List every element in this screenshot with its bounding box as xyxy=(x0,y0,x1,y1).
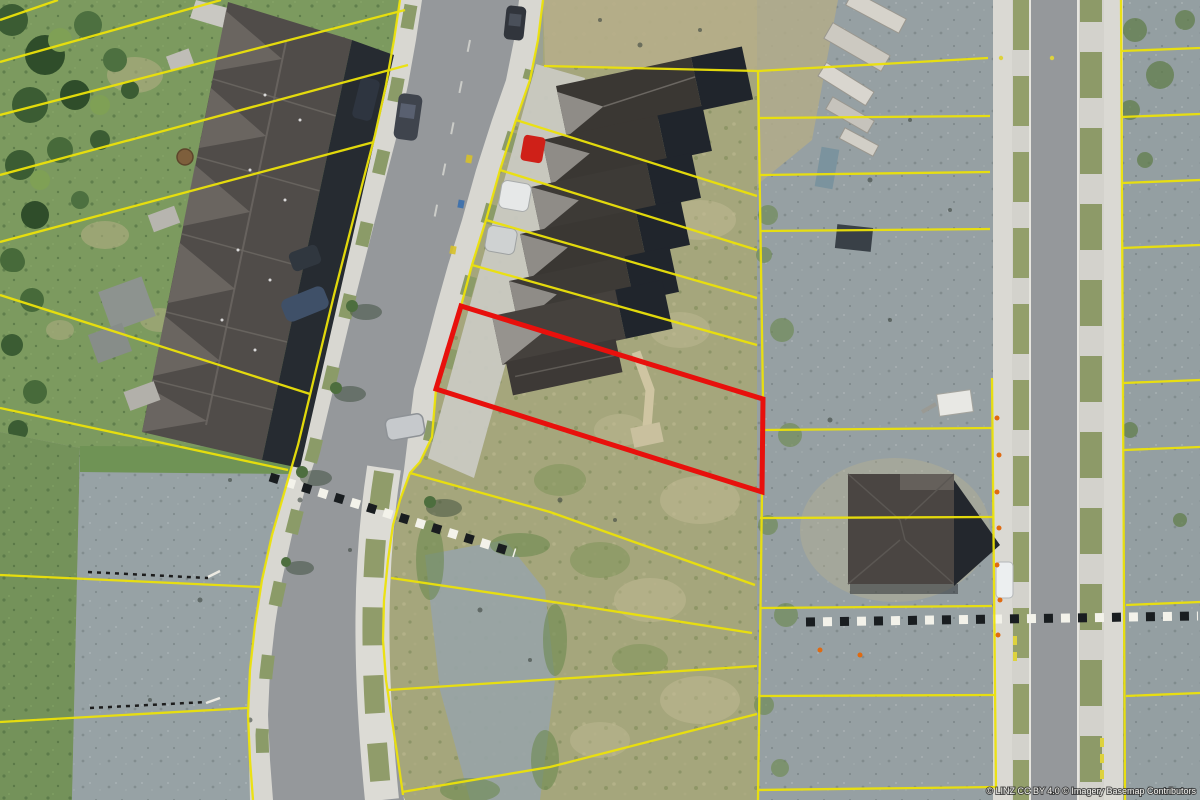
car-red-driveway xyxy=(520,134,546,163)
car-dark-top-road xyxy=(503,5,526,41)
gravel-far-right-texture xyxy=(1122,0,1200,800)
map-attribution: © LINZ CC BY 4.0 © Imagery Basemap Contr… xyxy=(986,786,1196,796)
van-white-east-street xyxy=(996,562,1013,598)
car-white-driveway-1 xyxy=(498,180,532,213)
street-east-asphalt xyxy=(1030,0,1078,800)
parcel-line xyxy=(760,517,993,518)
house-roof xyxy=(848,474,954,584)
house-shadow-south xyxy=(850,584,958,594)
aerial-map-canvas[interactable]: © LINZ CC BY 4.0 © Imagery Basemap Contr… xyxy=(0,0,1200,800)
garden-tub xyxy=(177,149,193,165)
grass-strip-texture xyxy=(0,432,80,800)
dark-panel xyxy=(835,224,873,252)
car-white-driveway-2 xyxy=(484,225,518,256)
map-viewport[interactable]: © LINZ CC BY 4.0 © Imagery Basemap Contr… xyxy=(0,0,1200,800)
parcel-line xyxy=(758,695,994,696)
